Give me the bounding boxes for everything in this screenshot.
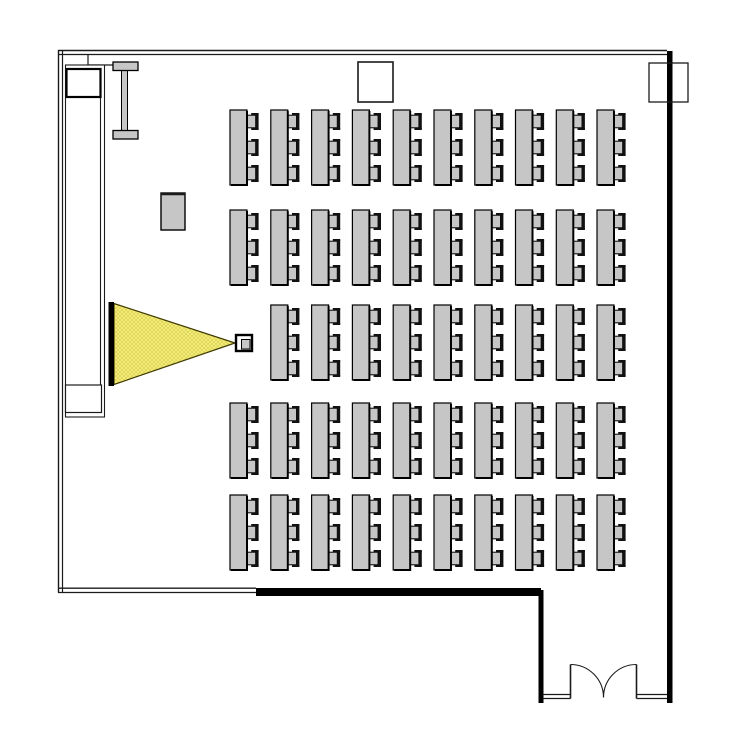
chair-seat — [574, 362, 582, 375]
chair-backrest — [622, 240, 625, 255]
chair — [492, 406, 503, 423]
chair-armrest-top — [292, 139, 299, 141]
chair-armrest-top — [374, 406, 381, 408]
chair — [492, 524, 503, 541]
chair-armrest-bottom — [374, 513, 381, 515]
chair-backrest — [419, 433, 422, 448]
chair-seat — [248, 460, 256, 473]
chair-armrest-bottom — [333, 280, 340, 282]
chair — [411, 213, 422, 230]
chair-armrest-bottom — [618, 228, 625, 230]
chair-backrest — [541, 407, 544, 422]
chair-armrest-bottom — [251, 565, 258, 567]
desk-unit — [352, 495, 381, 570]
chair-seat — [492, 241, 500, 254]
chair-backrest — [459, 551, 462, 566]
chair-armrest-bottom — [333, 254, 340, 256]
desk-unit — [352, 110, 381, 185]
chair — [533, 406, 544, 423]
chair-backrest — [296, 499, 299, 514]
desk-unit — [556, 305, 585, 380]
chair-armrest-bottom — [496, 154, 503, 156]
chair-backrest — [337, 433, 340, 448]
chair-backrest — [459, 266, 462, 281]
chair-backrest — [255, 114, 258, 129]
chair-seat — [492, 167, 500, 180]
chair-backrest — [337, 525, 340, 540]
chair-seat — [248, 408, 256, 421]
chair — [574, 550, 585, 567]
chair-seat — [574, 310, 582, 323]
chair-seat — [411, 434, 419, 447]
chair-seat — [288, 460, 296, 473]
chair — [574, 113, 585, 130]
chair-armrest-top — [618, 406, 625, 408]
chair-armrest-top — [292, 308, 299, 310]
chair-seat — [452, 408, 460, 421]
chair-armrest-top — [618, 458, 625, 460]
chair — [574, 458, 585, 475]
chair-backrest — [622, 266, 625, 281]
chair-backrest — [296, 266, 299, 281]
chair-armrest-top — [537, 432, 544, 434]
chair-armrest-top — [292, 334, 299, 336]
desk-table — [230, 110, 247, 185]
chair — [574, 139, 585, 156]
chair — [615, 406, 626, 423]
desk-unit — [352, 403, 381, 478]
chair-backrest — [582, 459, 585, 474]
chair — [615, 550, 626, 567]
chair-seat — [288, 167, 296, 180]
chair — [370, 265, 381, 282]
desk-table — [312, 210, 329, 285]
chair-backrest — [622, 525, 625, 540]
chair-armrest-bottom — [455, 323, 462, 325]
desk-unit — [516, 495, 545, 570]
chair-armrest-top — [618, 308, 625, 310]
chair-backrest — [541, 499, 544, 514]
chair-armrest-bottom — [292, 323, 299, 325]
chair-armrest-top — [578, 113, 585, 115]
chair-armrest-top — [455, 308, 462, 310]
floor-plan-canvas — [0, 0, 750, 750]
chair-armrest-top — [333, 524, 340, 526]
chair-seat — [411, 408, 419, 421]
chair-seat — [452, 241, 460, 254]
chair-armrest-bottom — [251, 154, 258, 156]
chair-backrest — [500, 114, 503, 129]
chair-armrest-top — [251, 524, 258, 526]
chair-armrest-top — [578, 165, 585, 167]
chair-armrest-bottom — [455, 280, 462, 282]
chair-seat — [615, 115, 623, 128]
chair-armrest-bottom — [292, 565, 299, 567]
chair-seat — [452, 267, 460, 280]
chair — [248, 265, 259, 282]
chair-armrest-bottom — [455, 473, 462, 475]
chair-seat — [248, 500, 256, 513]
desk-unit — [434, 305, 463, 380]
chair-armrest-top — [374, 524, 381, 526]
chair-armrest-top — [578, 213, 585, 215]
chair-armrest-top — [292, 498, 299, 500]
chair-armrest-bottom — [496, 280, 503, 282]
chair-armrest-top — [496, 334, 503, 336]
chair-seat — [492, 310, 500, 323]
beam-hatch-outline — [114, 304, 235, 385]
chair-backrest — [459, 240, 462, 255]
chair-armrest-bottom — [455, 513, 462, 515]
chair-backrest — [541, 214, 544, 229]
projector-lens — [242, 340, 251, 350]
chair-backrest — [337, 309, 340, 324]
chair-seat — [533, 241, 541, 254]
chair-seat — [492, 115, 500, 128]
chair-armrest-bottom — [496, 421, 503, 423]
chair-seat — [574, 115, 582, 128]
chair-seat — [574, 552, 582, 565]
chair — [288, 432, 299, 449]
chair-armrest-top — [578, 498, 585, 500]
chair-seat — [411, 267, 419, 280]
chair-seat — [248, 141, 256, 154]
chair — [288, 524, 299, 541]
chair-armrest-top — [578, 524, 585, 526]
chair — [248, 239, 259, 256]
chair — [533, 265, 544, 282]
chair — [248, 113, 259, 130]
chair-backrest — [378, 140, 381, 155]
chair — [370, 550, 381, 567]
chair-armrest-top — [333, 334, 340, 336]
chair — [615, 239, 626, 256]
desk-unit — [475, 110, 504, 185]
chair-backrest — [296, 551, 299, 566]
chair — [411, 458, 422, 475]
chair — [574, 265, 585, 282]
chair — [329, 139, 340, 156]
chair-backrest — [419, 214, 422, 229]
chair-backrest — [622, 140, 625, 155]
desk-table — [230, 495, 247, 570]
chair — [492, 334, 503, 351]
chair-armrest-top — [251, 498, 258, 500]
chair-backrest — [337, 499, 340, 514]
desk-unit — [312, 305, 341, 380]
chair-armrest-bottom — [292, 154, 299, 156]
desk-unit — [312, 210, 341, 285]
chair-armrest-bottom — [292, 375, 299, 377]
chair-armrest-top — [333, 213, 340, 215]
chair-backrest — [541, 459, 544, 474]
desk-table — [556, 110, 573, 185]
wall-bottom-thick — [256, 588, 541, 596]
chair — [411, 360, 422, 377]
desk-table — [312, 495, 329, 570]
chair-armrest-bottom — [374, 539, 381, 541]
chair-armrest-top — [537, 213, 544, 215]
desk-unit — [434, 495, 463, 570]
desk-table — [434, 305, 451, 380]
chair-seat — [574, 336, 582, 349]
chair-armrest-top — [374, 165, 381, 167]
chair-seat — [329, 215, 337, 228]
chair-armrest-bottom — [618, 128, 625, 130]
chair-armrest-top — [374, 550, 381, 552]
desk-table — [271, 305, 288, 380]
desk-unit — [597, 305, 626, 380]
chair-backrest — [255, 166, 258, 181]
chair-backrest — [500, 361, 503, 376]
chair-backrest — [582, 114, 585, 129]
chair-armrest-bottom — [537, 154, 544, 156]
desk-table — [475, 110, 492, 185]
chair-backrest — [296, 214, 299, 229]
chair-armrest-top — [414, 265, 421, 267]
chair — [574, 239, 585, 256]
chair — [533, 113, 544, 130]
chair-armrest-top — [496, 308, 503, 310]
chair-backrest — [582, 166, 585, 181]
chair-armrest-top — [414, 139, 421, 141]
chair-armrest-bottom — [374, 565, 381, 567]
chair-armrest-top — [414, 550, 421, 552]
chair — [615, 458, 626, 475]
chair-backrest — [419, 240, 422, 255]
chair-armrest-bottom — [618, 565, 625, 567]
chair — [452, 360, 463, 377]
chair-armrest-top — [251, 550, 258, 552]
desk-table — [434, 110, 451, 185]
chair-seat — [411, 241, 419, 254]
chair-seat — [533, 552, 541, 565]
desk-unit — [434, 403, 463, 478]
chair-seat — [533, 310, 541, 323]
chair — [574, 406, 585, 423]
wall-right-thick — [667, 51, 673, 703]
chair-seat — [574, 526, 582, 539]
chair-backrest — [459, 114, 462, 129]
chair-armrest-bottom — [455, 375, 462, 377]
chair-armrest-top — [414, 165, 421, 167]
chair-backrest — [378, 459, 381, 474]
chair — [329, 360, 340, 377]
chair — [452, 265, 463, 282]
chair-armrest-top — [374, 334, 381, 336]
desk-unit — [271, 110, 300, 185]
chair-seat — [248, 552, 256, 565]
chair-armrest-bottom — [292, 513, 299, 515]
chair-armrest-top — [537, 406, 544, 408]
chair-seat — [370, 167, 378, 180]
chair-backrest — [378, 114, 381, 129]
chair-armrest-top — [333, 498, 340, 500]
chair-seat — [288, 362, 296, 375]
projection-screen — [109, 302, 115, 386]
chair — [574, 432, 585, 449]
chair-armrest-bottom — [414, 473, 421, 475]
chair-seat — [574, 460, 582, 473]
chair-armrest-bottom — [578, 565, 585, 567]
desk-unit — [312, 403, 341, 478]
chair-seat — [574, 500, 582, 513]
chair — [329, 265, 340, 282]
chair-backrest — [622, 361, 625, 376]
chair-armrest-bottom — [496, 254, 503, 256]
chair-backrest — [255, 459, 258, 474]
chair — [615, 334, 626, 351]
chair-armrest-bottom — [251, 473, 258, 475]
chair-backrest — [582, 214, 585, 229]
chair-seat — [370, 362, 378, 375]
desk-table — [434, 210, 451, 285]
chair — [574, 213, 585, 230]
desk-table — [393, 403, 410, 478]
chair-armrest-bottom — [414, 349, 421, 351]
chair-backrest — [500, 309, 503, 324]
desk-table — [312, 110, 329, 185]
desk-table — [597, 210, 614, 285]
chair-armrest-top — [618, 498, 625, 500]
desk-unit — [393, 403, 422, 478]
chair — [329, 498, 340, 515]
chair-seat — [329, 500, 337, 513]
chair-armrest-top — [414, 432, 421, 434]
desk-table — [556, 403, 573, 478]
chair-backrest — [582, 499, 585, 514]
chair-backrest — [541, 433, 544, 448]
chair — [492, 458, 503, 475]
chair — [533, 458, 544, 475]
chair-seat — [492, 460, 500, 473]
desk-table — [352, 495, 369, 570]
chair-backrest — [622, 433, 625, 448]
chair-backrest — [582, 309, 585, 324]
chair-seat — [452, 460, 460, 473]
chair-armrest-top — [496, 139, 503, 141]
chair-armrest-top — [455, 213, 462, 215]
chair-seat — [329, 336, 337, 349]
double-door — [571, 665, 637, 699]
chair — [411, 239, 422, 256]
chair-backrest — [255, 140, 258, 155]
desk-table — [393, 495, 410, 570]
chair-armrest-bottom — [333, 473, 340, 475]
chair-backrest — [378, 166, 381, 181]
chair-armrest-bottom — [496, 180, 503, 182]
desk-table — [556, 495, 573, 570]
chair-seat — [329, 141, 337, 154]
chair-armrest-bottom — [455, 447, 462, 449]
chair-armrest-top — [537, 265, 544, 267]
chair-backrest — [541, 166, 544, 181]
chair-armrest-bottom — [578, 280, 585, 282]
chair-backrest — [378, 335, 381, 350]
chair-armrest-top — [374, 113, 381, 115]
top-center-box — [358, 62, 393, 102]
chair-backrest — [337, 140, 340, 155]
chair-backrest — [337, 335, 340, 350]
desk-unit — [393, 305, 422, 380]
desk-unit — [230, 210, 259, 285]
chair — [288, 308, 299, 325]
chair-seat — [574, 215, 582, 228]
desk-unit — [597, 110, 626, 185]
chair-armrest-bottom — [537, 539, 544, 541]
chair-backrest — [337, 551, 340, 566]
chair-armrest-bottom — [496, 228, 503, 230]
chair-armrest-bottom — [455, 180, 462, 182]
desk-table — [434, 495, 451, 570]
chair-backrest — [622, 335, 625, 350]
chair-armrest-top — [333, 113, 340, 115]
chair-armrest-top — [251, 113, 258, 115]
chair-armrest-top — [333, 432, 340, 434]
chair-backrest — [582, 240, 585, 255]
desk-table — [597, 403, 614, 478]
chair-seat — [329, 241, 337, 254]
chair-seat — [574, 434, 582, 447]
chair-seat — [533, 460, 541, 473]
desk-table — [516, 305, 533, 380]
chair — [370, 113, 381, 130]
chair-armrest-bottom — [537, 228, 544, 230]
chair-seat — [370, 115, 378, 128]
chair-seat — [615, 267, 623, 280]
chair-seat — [574, 408, 582, 421]
chair-armrest-top — [496, 498, 503, 500]
chair — [452, 308, 463, 325]
chair-backrest — [622, 459, 625, 474]
chair-seat — [288, 500, 296, 513]
chair-seat — [329, 167, 337, 180]
chair-armrest-bottom — [414, 447, 421, 449]
chair-armrest-top — [374, 308, 381, 310]
chair — [329, 406, 340, 423]
chair-armrest-bottom — [537, 180, 544, 182]
desk-unit — [516, 403, 545, 478]
chair — [248, 165, 259, 182]
chair-armrest-top — [578, 139, 585, 141]
chair-seat — [615, 408, 623, 421]
chair-backrest — [459, 499, 462, 514]
chair-backrest — [541, 335, 544, 350]
chair-armrest-bottom — [251, 180, 258, 182]
chair-armrest-top — [251, 458, 258, 460]
chair-armrest-bottom — [333, 513, 340, 515]
chair-backrest — [255, 240, 258, 255]
wall-top-notch — [88, 55, 113, 66]
chair-armrest-top — [578, 265, 585, 267]
chair-armrest-top — [414, 308, 421, 310]
chair-armrest-top — [455, 113, 462, 115]
chair-backrest — [500, 407, 503, 422]
chair — [533, 165, 544, 182]
chair-seat — [411, 460, 419, 473]
desk-table — [516, 495, 533, 570]
chair-armrest-top — [333, 360, 340, 362]
chair-armrest-top — [537, 550, 544, 552]
chair-backrest — [419, 499, 422, 514]
desk-table — [516, 210, 533, 285]
chair-backrest — [500, 166, 503, 181]
chair-backrest — [541, 114, 544, 129]
chair-armrest-bottom — [578, 323, 585, 325]
chair — [492, 239, 503, 256]
desk-unit — [556, 495, 585, 570]
chair — [370, 239, 381, 256]
